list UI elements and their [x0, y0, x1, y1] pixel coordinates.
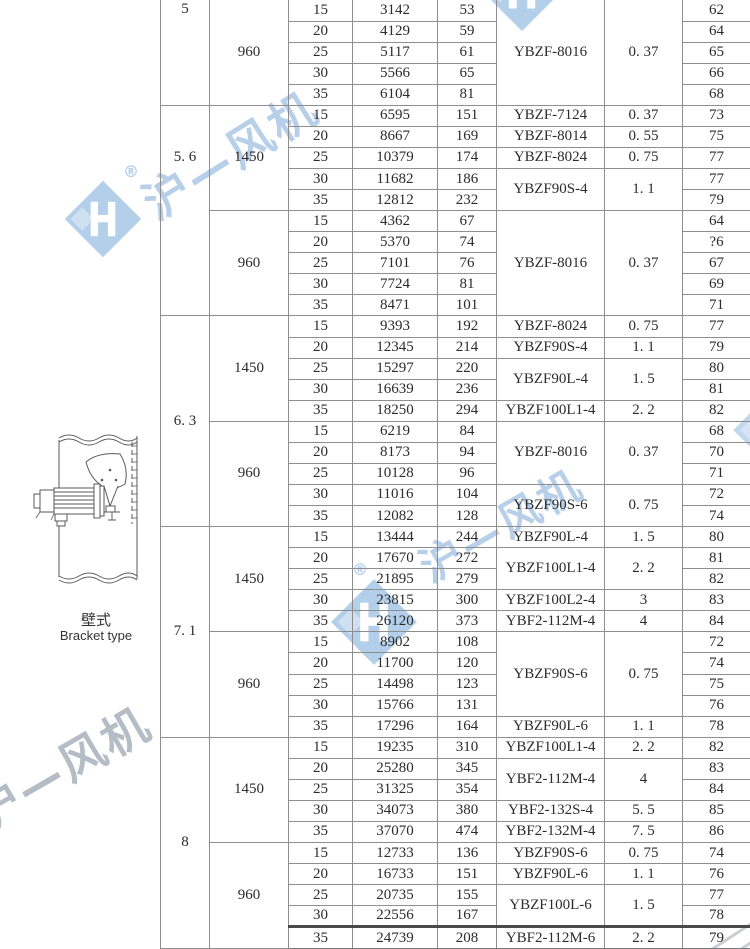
cell-motor-model: YBZF-8024	[497, 147, 605, 168]
cell-noise: 82	[683, 400, 750, 421]
cell-noise: 71	[683, 295, 750, 316]
cell-airflow: 3142	[353, 0, 438, 21]
cell-pressure: 192	[438, 316, 497, 337]
cell-motor-model: YBF2-132S-4	[497, 800, 605, 821]
cell-airflow: 13444	[353, 527, 438, 548]
cell-power: 4	[605, 758, 683, 800]
cell-rpm: 960	[210, 632, 289, 737]
cell-angle: 20	[289, 758, 353, 779]
cell-airflow: 15297	[353, 358, 438, 379]
cell-motor-model: YBZF-8016	[497, 421, 605, 484]
cell-noise: 79	[683, 337, 750, 358]
cell-airflow: 6219	[353, 421, 438, 442]
cell-pressure: 174	[438, 147, 497, 168]
scanned-fan-spec-page: ® 沪—风机 ® 沪—风机 沪—风机	[0, 0, 750, 949]
cell-motor-model: YBF2-112M-4	[497, 758, 605, 800]
cell-angle: 25	[289, 885, 353, 906]
size-value: 5. 6	[161, 150, 209, 165]
cell-pressure: 84	[438, 421, 497, 442]
cell-pressure: 101	[438, 295, 497, 316]
cell-noise: 86	[683, 821, 750, 842]
cell-pressure: 120	[438, 653, 497, 674]
cell-pressure: 167	[438, 906, 497, 927]
cell-pressure: 380	[438, 800, 497, 821]
cell-angle: 30	[289, 484, 353, 505]
cell-pressure: 151	[438, 864, 497, 885]
cell-power: 0. 75	[605, 843, 683, 864]
cell-angle: 30	[289, 169, 353, 190]
cell-power: 0. 37	[605, 421, 683, 484]
cell-angle: 35	[289, 821, 353, 842]
cell-noise: 77	[683, 316, 750, 337]
cell-power: 1. 5	[605, 527, 683, 548]
cell-airflow: 12345	[353, 337, 438, 358]
cell-angle: 25	[289, 674, 353, 695]
cell-power: 5. 5	[605, 800, 683, 821]
cell-airflow: 26120	[353, 611, 438, 632]
cell-noise: 84	[683, 611, 750, 632]
cell-noise: 69	[683, 274, 750, 295]
cell-noise: ?6	[683, 232, 750, 253]
cell-noise: 70	[683, 442, 750, 463]
cell-noise: 83	[683, 758, 750, 779]
cell-rpm: 960	[210, 843, 289, 949]
cell-airflow: 11682	[353, 169, 438, 190]
cell-angle: 25	[289, 147, 353, 168]
cell-noise: 68	[683, 421, 750, 442]
cell-power: 0. 55	[605, 126, 683, 147]
cell-angle: 35	[289, 506, 353, 527]
cell-angle: 35	[289, 84, 353, 105]
cell-angle: 20	[289, 21, 353, 42]
watermark-logo-left	[62, 178, 144, 260]
cell-pressure: 74	[438, 232, 497, 253]
brand-logo-icon	[62, 178, 144, 260]
cell-airflow: 5117	[353, 42, 438, 63]
cell-power: 0. 75	[605, 632, 683, 716]
cell-airflow: 15766	[353, 695, 438, 716]
cell-rpm: 1450	[210, 105, 289, 210]
cell-pressure: 220	[438, 358, 497, 379]
cell-pressure: 373	[438, 611, 497, 632]
cell-motor-model: YBZF90S-6	[497, 843, 605, 864]
cell-power: 0. 75	[605, 316, 683, 337]
cell-angle: 20	[289, 337, 353, 358]
cell-angle: 15	[289, 316, 353, 337]
cell-airflow: 10128	[353, 463, 438, 484]
cell-noise: 78	[683, 906, 750, 927]
cell-noise: 66	[683, 63, 750, 84]
cell-motor-model: YBZF90S-4	[497, 169, 605, 211]
cell-pressure: 67	[438, 211, 497, 232]
cell-angle: 20	[289, 126, 353, 147]
cell-angle: 30	[289, 379, 353, 400]
cell-pressure: 186	[438, 169, 497, 190]
cell-noise: 67	[683, 253, 750, 274]
cell-motor-model: YBZF-8024	[497, 316, 605, 337]
spec-table-body: 596015314253YBZF-80160. 3762204129596425…	[161, 0, 750, 949]
cell-pressure: 169	[438, 126, 497, 147]
cell-airflow: 14498	[353, 674, 438, 695]
cell-airflow: 23815	[353, 590, 438, 611]
size-value: 5	[161, 0, 209, 17]
cell-airflow: 37070	[353, 821, 438, 842]
cell-motor-model: YBZF100L-6	[497, 885, 605, 927]
cell-noise: 80	[683, 527, 750, 548]
cell-motor-model: YBZF-7124	[497, 105, 605, 126]
cell-airflow: 31325	[353, 779, 438, 800]
cell-pressure: 76	[438, 253, 497, 274]
cell-angle: 15	[289, 421, 353, 442]
cell-pressure: 310	[438, 737, 497, 758]
cell-airflow: 8902	[353, 632, 438, 653]
cell-pressure: 61	[438, 42, 497, 63]
cell-angle: 20	[289, 442, 353, 463]
cell-motor-model: YBZF90S-6	[497, 632, 605, 716]
cell-angle: 35	[289, 400, 353, 421]
cell-power: 1. 5	[605, 885, 683, 927]
cell-airflow: 5370	[353, 232, 438, 253]
cell-power: 0. 75	[605, 147, 683, 168]
cell-noise: 74	[683, 506, 750, 527]
cell-motor-model: YBZF100L1-4	[497, 548, 605, 590]
cell-noise: 84	[683, 779, 750, 800]
cell-pressure: 294	[438, 400, 497, 421]
cell-airflow: 24739	[353, 927, 438, 949]
cell-pressure: 155	[438, 885, 497, 906]
cell-power: 1. 1	[605, 169, 683, 211]
cell-airflow: 10379	[353, 147, 438, 168]
table-row: 596015314253YBZF-80160. 3762	[161, 0, 750, 21]
cell-size: 5. 6	[161, 105, 210, 316]
cell-noise: 76	[683, 864, 750, 885]
cell-rpm: 960	[210, 421, 289, 526]
cell-pressure: 65	[438, 63, 497, 84]
cell-angle: 15	[289, 527, 353, 548]
cell-angle: 25	[289, 42, 353, 63]
cell-angle: 35	[289, 927, 353, 949]
size-value: 6. 3	[161, 414, 209, 429]
cell-rpm: 1450	[210, 527, 289, 632]
cell-noise: 81	[683, 379, 750, 400]
cell-power: 2. 2	[605, 737, 683, 758]
cell-rpm: 1450	[210, 316, 289, 421]
diagram-label-cn: 壁式	[46, 612, 146, 629]
cell-power: 2. 2	[605, 927, 683, 949]
cell-airflow: 6595	[353, 105, 438, 126]
spec-table: 596015314253YBZF-80160. 3762204129596425…	[160, 0, 750, 949]
cell-power: 4	[605, 611, 683, 632]
cell-power: 1. 1	[605, 337, 683, 358]
cell-noise: 80	[683, 358, 750, 379]
cell-size: 7. 1	[161, 527, 210, 738]
cell-airflow: 7724	[353, 274, 438, 295]
cell-airflow: 8173	[353, 442, 438, 463]
cell-motor-model: YBZF90L-6	[497, 716, 605, 737]
watermark-text-bottom-left: 沪—风机	[0, 688, 162, 843]
cell-rpm: 1450	[210, 737, 289, 842]
cell-noise: 79	[683, 927, 750, 949]
cell-pressure: 354	[438, 779, 497, 800]
cell-airflow: 12082	[353, 506, 438, 527]
cell-power: 1. 5	[605, 358, 683, 400]
cell-motor-model: YBZF-8014	[497, 126, 605, 147]
cell-angle: 15	[289, 211, 353, 232]
size-value: 8	[161, 835, 209, 850]
bracket-type-diagram	[28, 428, 146, 590]
cell-airflow: 6104	[353, 84, 438, 105]
cell-airflow: 9393	[353, 316, 438, 337]
cell-power: 2. 2	[605, 400, 683, 421]
cell-motor-model: YBF2-112M-6	[497, 927, 605, 949]
cell-airflow: 8471	[353, 295, 438, 316]
cell-airflow: 21895	[353, 569, 438, 590]
cell-motor-model: YBZF100L1-4	[497, 400, 605, 421]
cell-pressure: 151	[438, 105, 497, 126]
cell-airflow: 5566	[353, 63, 438, 84]
cell-airflow: 4362	[353, 211, 438, 232]
cell-pressure: 214	[438, 337, 497, 358]
cell-pressure: 272	[438, 548, 497, 569]
cell-noise: 68	[683, 84, 750, 105]
cell-pressure: 94	[438, 442, 497, 463]
cell-power: 1. 1	[605, 864, 683, 885]
cell-airflow: 16639	[353, 379, 438, 400]
cell-noise: 71	[683, 463, 750, 484]
cell-power: 2. 2	[605, 548, 683, 590]
cell-motor-model: YBZF-8016	[497, 0, 605, 105]
cell-rpm: 960	[210, 211, 289, 316]
cell-pressure: 59	[438, 21, 497, 42]
cell-pressure: 474	[438, 821, 497, 842]
cell-airflow: 34073	[353, 800, 438, 821]
diagram-label-en: Bracket type	[46, 629, 146, 644]
cell-airflow: 19235	[353, 737, 438, 758]
cell-motor-model: YBZF90L-4	[497, 358, 605, 400]
cell-motor-model: YBZF90S-6	[497, 484, 605, 526]
cell-angle: 30	[289, 274, 353, 295]
cell-power: 0. 37	[605, 211, 683, 316]
cell-motor-model: YBF2-112M-4	[497, 611, 605, 632]
cell-pressure: 164	[438, 716, 497, 737]
cell-angle: 35	[289, 190, 353, 211]
cell-noise: 65	[683, 42, 750, 63]
cell-pressure: 108	[438, 632, 497, 653]
cell-angle: 25	[289, 358, 353, 379]
cell-angle: 15	[289, 737, 353, 758]
cell-airflow: 12812	[353, 190, 438, 211]
cell-angle: 15	[289, 632, 353, 653]
table-row: 96015621984YBZF-80160. 3768	[161, 421, 750, 442]
cell-noise: 62	[683, 0, 750, 21]
cell-noise: 77	[683, 147, 750, 168]
cell-noise: 82	[683, 737, 750, 758]
cell-pressure: 131	[438, 695, 497, 716]
cell-motor-model: YBZF90L-6	[497, 864, 605, 885]
cell-power: 7. 5	[605, 821, 683, 842]
cell-pressure: 232	[438, 190, 497, 211]
cell-power: 3	[605, 590, 683, 611]
cell-noise: 77	[683, 885, 750, 906]
cell-rpm: 960	[210, 0, 289, 105]
cell-motor-model: YBZF100L2-4	[497, 590, 605, 611]
cell-pressure: 208	[438, 927, 497, 949]
cell-size: 5	[161, 0, 210, 105]
cell-angle: 15	[289, 843, 353, 864]
cell-noise: 85	[683, 800, 750, 821]
cell-pressure: 279	[438, 569, 497, 590]
cell-airflow: 20735	[353, 885, 438, 906]
cell-noise: 72	[683, 484, 750, 505]
cell-motor-model: YBF2-132M-4	[497, 821, 605, 842]
cell-noise: 76	[683, 695, 750, 716]
cell-angle: 20	[289, 548, 353, 569]
cell-angle: 15	[289, 0, 353, 21]
cell-size: 6. 3	[161, 316, 210, 527]
cell-angle: 30	[289, 590, 353, 611]
cell-airflow: 17670	[353, 548, 438, 569]
cell-airflow: 12733	[353, 843, 438, 864]
cell-pressure: 81	[438, 84, 497, 105]
cell-pressure: 53	[438, 0, 497, 21]
cell-noise: 75	[683, 674, 750, 695]
cell-angle: 30	[289, 63, 353, 84]
registered-mark: ®	[123, 162, 139, 181]
cell-angle: 15	[289, 105, 353, 126]
cell-airflow: 4129	[353, 21, 438, 42]
cell-noise: 77	[683, 169, 750, 190]
cell-airflow: 18250	[353, 400, 438, 421]
cell-pressure: 345	[438, 758, 497, 779]
cell-angle: 30	[289, 906, 353, 927]
diagram-label: 壁式 Bracket type	[46, 612, 146, 644]
cell-airflow: 16733	[353, 864, 438, 885]
size-value: 7. 1	[161, 624, 209, 639]
cell-noise: 75	[683, 126, 750, 147]
cell-airflow: 11700	[353, 653, 438, 674]
cell-angle: 25	[289, 253, 353, 274]
cell-angle: 25	[289, 569, 353, 590]
cell-pressure: 128	[438, 506, 497, 527]
table-row: 960158902108YBZF90S-60. 7572	[161, 632, 750, 653]
cell-airflow: 22556	[353, 906, 438, 927]
cell-power: 1. 1	[605, 716, 683, 737]
cell-pressure: 104	[438, 484, 497, 505]
cell-motor-model: YBZF90L-4	[497, 527, 605, 548]
cell-angle: 25	[289, 463, 353, 484]
cell-motor-model: YBZF100L1-4	[497, 737, 605, 758]
cell-noise: 79	[683, 190, 750, 211]
cell-motor-model: YBZF90S-4	[497, 337, 605, 358]
cell-angle: 20	[289, 653, 353, 674]
cell-pressure: 96	[438, 463, 497, 484]
cell-pressure: 236	[438, 379, 497, 400]
cell-power: 0. 37	[605, 0, 683, 105]
cell-airflow: 17296	[353, 716, 438, 737]
cell-noise: 83	[683, 590, 750, 611]
cell-pressure: 123	[438, 674, 497, 695]
cell-airflow: 8667	[353, 126, 438, 147]
cell-airflow: 11016	[353, 484, 438, 505]
cell-angle: 30	[289, 695, 353, 716]
cell-angle: 30	[289, 800, 353, 821]
cell-pressure: 136	[438, 843, 497, 864]
cell-airflow: 7101	[353, 253, 438, 274]
table-row: 7. 114501513444244YBZF90L-41. 580	[161, 527, 750, 548]
cell-angle: 35	[289, 611, 353, 632]
cell-noise: 64	[683, 211, 750, 232]
cell-noise: 74	[683, 843, 750, 864]
cell-noise: 72	[683, 632, 750, 653]
cell-noise: 64	[683, 21, 750, 42]
table-row: 9601512733136YBZF90S-60. 7574	[161, 843, 750, 864]
cell-angle: 20	[289, 864, 353, 885]
cell-power: 0. 37	[605, 105, 683, 126]
table-row: 96015436267YBZF-80160. 3764	[161, 211, 750, 232]
cell-pressure: 300	[438, 590, 497, 611]
cell-airflow: 25280	[353, 758, 438, 779]
cell-noise: 82	[683, 569, 750, 590]
table-row: 814501519235310YBZF100L1-42. 282	[161, 737, 750, 758]
cell-noise: 74	[683, 653, 750, 674]
cell-power: 0. 75	[605, 484, 683, 526]
cell-noise: 78	[683, 716, 750, 737]
table-row: 5. 61450156595151YBZF-71240. 3773	[161, 105, 750, 126]
cell-angle: 35	[289, 295, 353, 316]
table-row: 6. 31450159393192YBZF-80240. 7577	[161, 316, 750, 337]
cell-motor-model: YBZF-8016	[497, 211, 605, 316]
cell-size: 8	[161, 737, 210, 948]
cell-pressure: 244	[438, 527, 497, 548]
cell-noise: 73	[683, 105, 750, 126]
cell-pressure: 81	[438, 274, 497, 295]
cell-angle: 25	[289, 779, 353, 800]
cell-angle: 20	[289, 232, 353, 253]
cell-angle: 35	[289, 716, 353, 737]
cell-noise: 81	[683, 548, 750, 569]
